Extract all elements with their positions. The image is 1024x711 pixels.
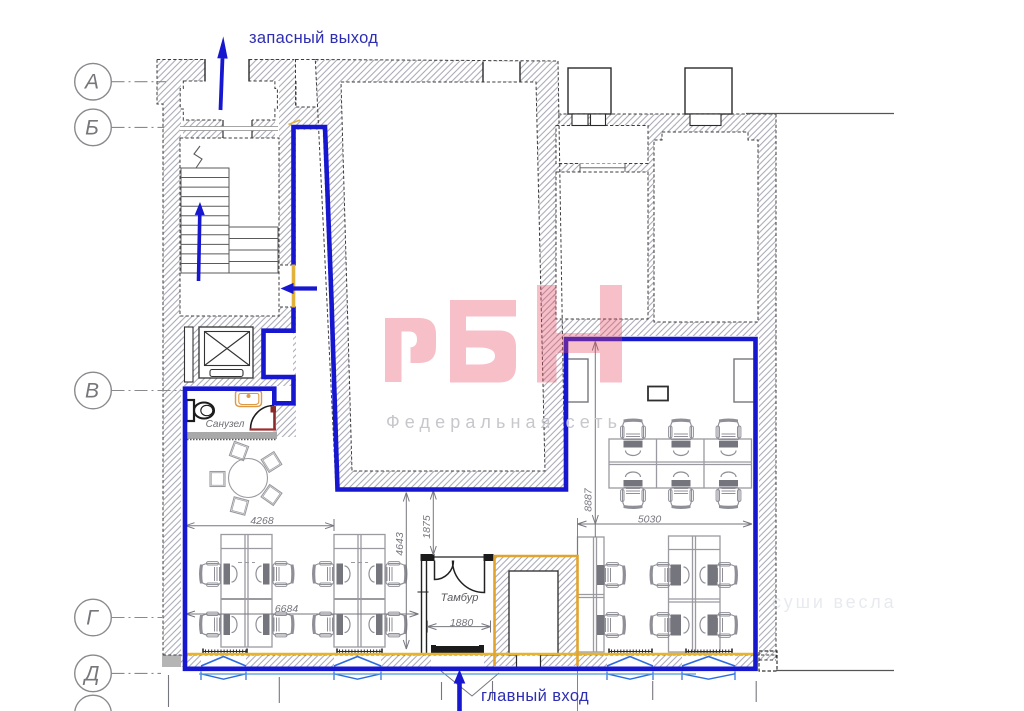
svg-text:В: В <box>85 380 99 403</box>
svg-text:А: А <box>83 71 99 94</box>
svg-text:4268: 4268 <box>250 515 274 527</box>
svg-text:Д: Д <box>83 662 100 685</box>
svg-text:Г: Г <box>86 607 99 630</box>
svg-text:Б: Б <box>85 116 99 139</box>
svg-text:главный вход: главный вход <box>481 687 589 705</box>
svg-text:суши весла: суши весла <box>772 592 896 612</box>
svg-text:запасный выход: запасный выход <box>249 29 378 47</box>
svg-text:1880: 1880 <box>450 617 474 629</box>
svg-text:8887: 8887 <box>583 487 595 512</box>
svg-text:Федеральная сеть: Федеральная сеть <box>386 412 622 432</box>
svg-text:4643: 4643 <box>394 532 406 556</box>
svg-text:1875: 1875 <box>421 515 433 539</box>
svg-text:5030: 5030 <box>638 514 662 526</box>
svg-text:Тамбур: Тамбур <box>441 592 479 604</box>
svg-text:Санузел: Санузел <box>206 419 245 430</box>
svg-text:6684: 6684 <box>275 603 299 615</box>
